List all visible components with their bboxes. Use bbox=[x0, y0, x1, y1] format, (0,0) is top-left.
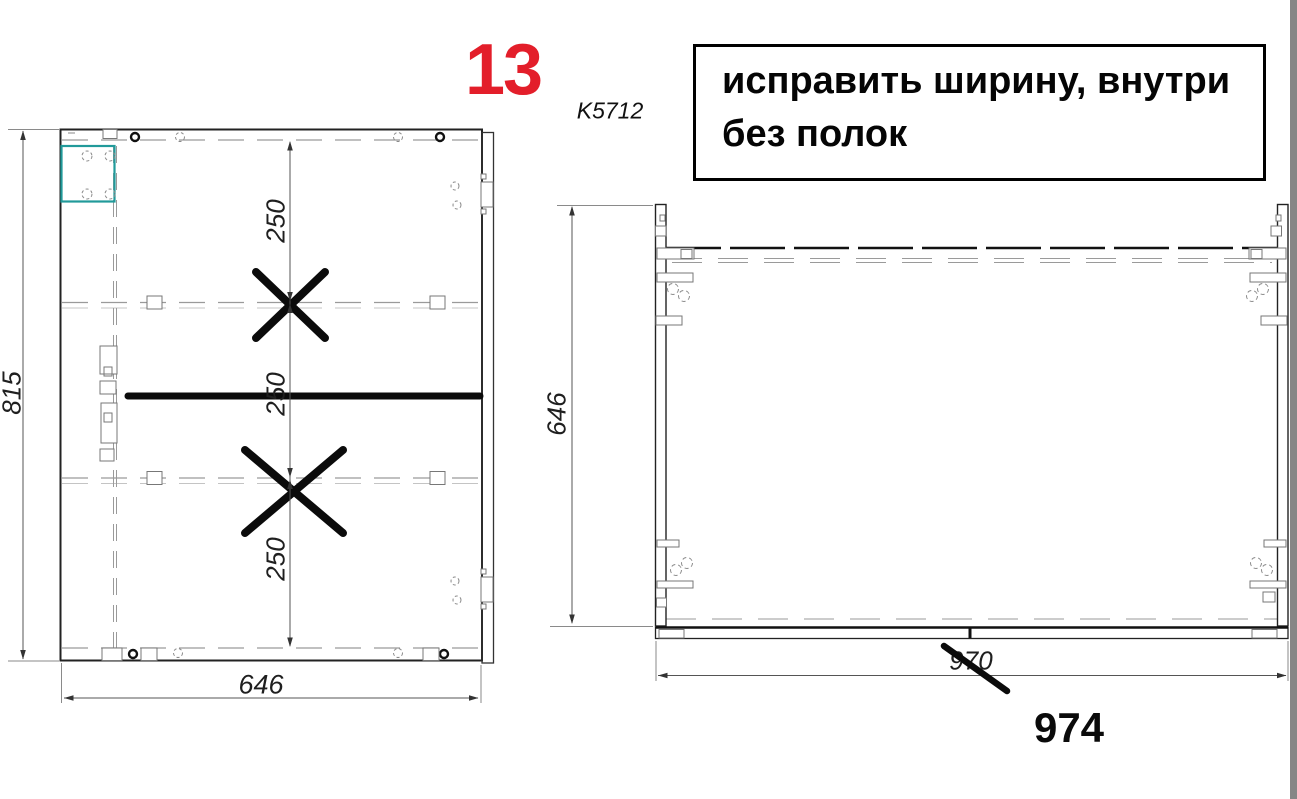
teal-highlight-box bbox=[62, 146, 115, 202]
dim-width-646-left: 646 bbox=[238, 670, 283, 701]
page-number: 13 bbox=[465, 29, 541, 111]
right-drawing-carcass-view bbox=[656, 205, 1289, 639]
dim-section-250-middle: 250 bbox=[261, 372, 292, 415]
dimensioning bbox=[8, 130, 1288, 704]
hinge-arc-marks bbox=[668, 284, 1273, 576]
dim-width-974-corrected: 974 bbox=[1034, 704, 1104, 752]
dimension-lines bbox=[23, 131, 1286, 698]
extension-lines bbox=[8, 130, 1288, 704]
note-line-2: без полок bbox=[722, 108, 1263, 161]
hardware-marks-right bbox=[656, 215, 1288, 638]
dim-section-250-bottom: 250 bbox=[261, 537, 292, 580]
left-side-panel bbox=[656, 205, 667, 627]
bottom-panel-band bbox=[656, 628, 1289, 639]
dim-width-970-crossed: 970 bbox=[949, 646, 992, 677]
right-side-panel bbox=[1278, 205, 1289, 627]
drawing-page: 13 K5712 исправить ширину, внутри без по… bbox=[0, 0, 1297, 799]
correction-note-box: исправить ширину, внутри без полок bbox=[693, 44, 1266, 181]
model-code-label: K5712 bbox=[577, 98, 644, 125]
dim-section-250-top: 250 bbox=[261, 199, 292, 242]
door-gap-dashed-line bbox=[114, 146, 117, 648]
top-back-dashed-lines bbox=[672, 259, 1272, 263]
dimension-arrowheads bbox=[20, 131, 1286, 701]
crossout-x-2 bbox=[245, 450, 343, 533]
window-edge bbox=[1290, 0, 1297, 799]
dim-height-646-right: 646 bbox=[542, 392, 573, 435]
note-line-1: исправить ширину, внутри bbox=[722, 55, 1263, 108]
dim-height-815: 815 bbox=[0, 371, 28, 414]
